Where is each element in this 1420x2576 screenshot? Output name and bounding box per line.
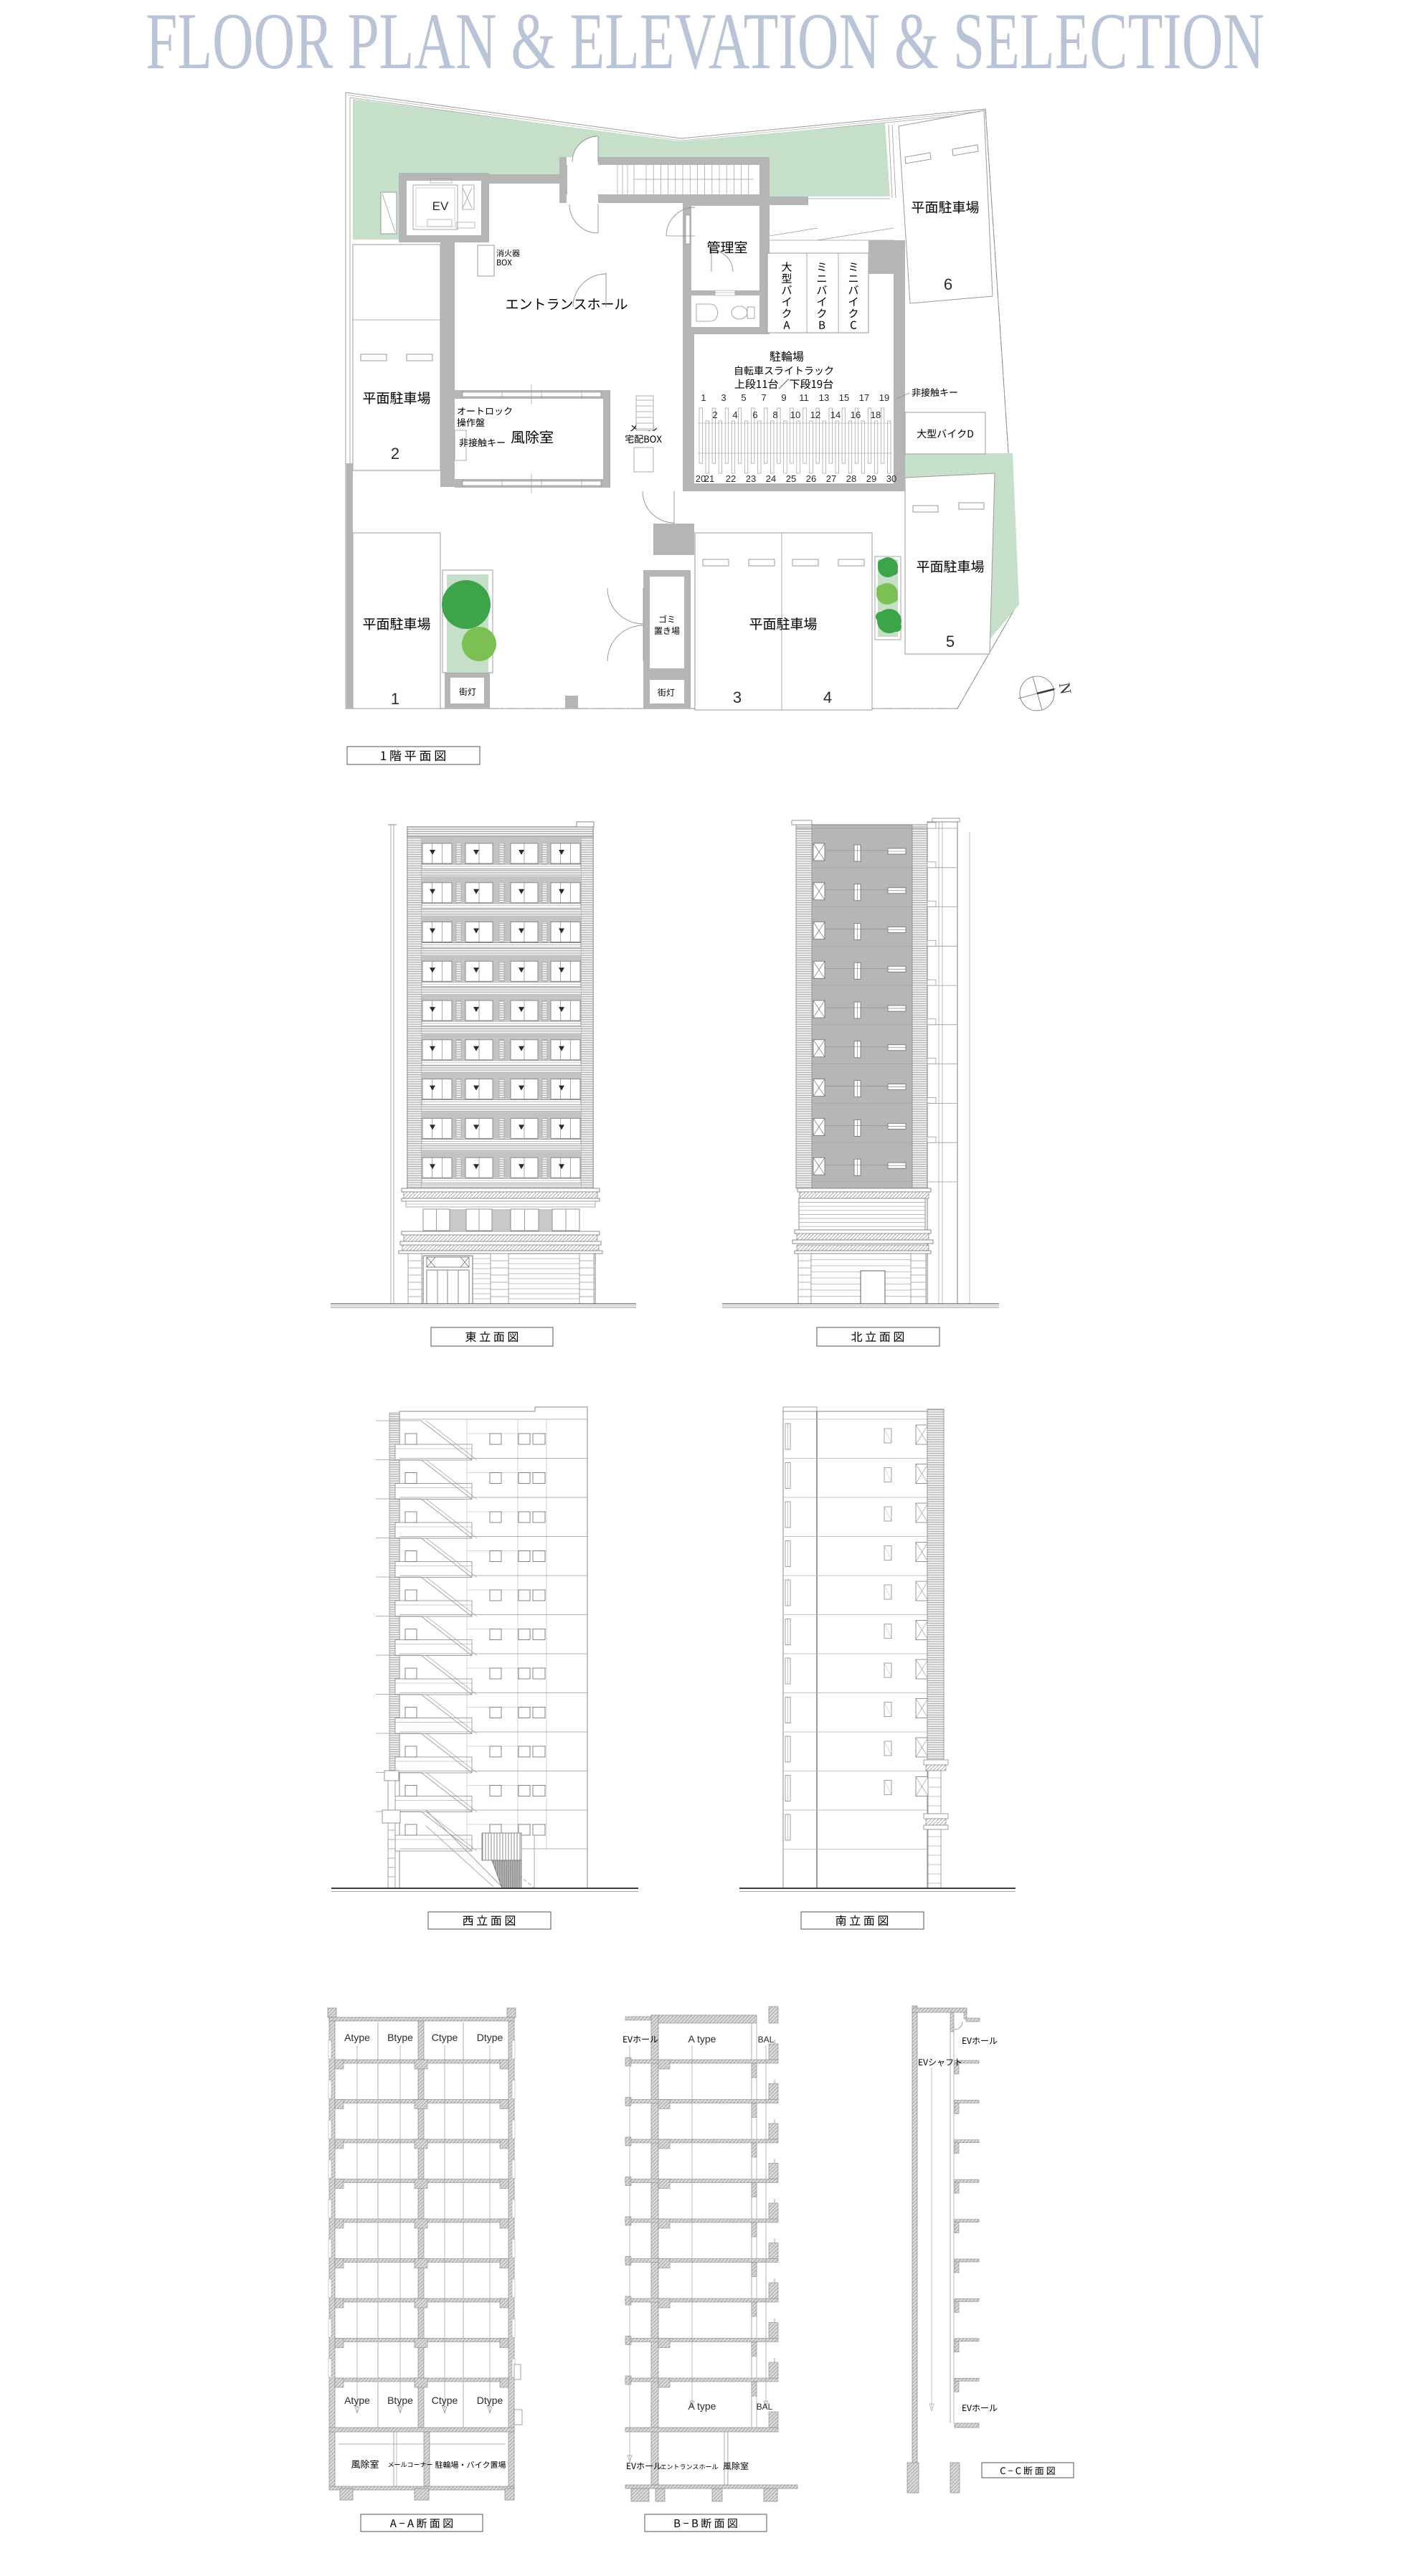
svg-text:1: 1: [391, 690, 399, 708]
svg-text:24: 24: [766, 473, 776, 484]
svg-text:Atype: Atype: [344, 2395, 370, 2406]
svg-text:19: 19: [879, 392, 889, 403]
svg-text:5: 5: [741, 392, 746, 403]
svg-text:A type: A type: [688, 2033, 716, 2045]
svg-text:2: 2: [712, 409, 717, 420]
svg-text:14: 14: [830, 409, 841, 420]
svg-text:1: 1: [701, 392, 706, 403]
svg-text:6: 6: [944, 275, 952, 293]
svg-text:7: 7: [761, 392, 766, 403]
svg-text:23: 23: [746, 473, 756, 484]
svg-text:4: 4: [732, 409, 737, 420]
svg-text:EV: EV: [432, 199, 449, 213]
svg-text:15: 15: [839, 392, 849, 403]
svg-text:28: 28: [846, 473, 856, 484]
svg-text:18: 18: [871, 409, 881, 420]
svg-text:3: 3: [733, 688, 742, 706]
svg-text:FLOOR PLAN & ELEVATION & SELEC: FLOOR PLAN & ELEVATION & SELECTION: [146, 0, 1264, 86]
svg-text:5: 5: [946, 633, 955, 650]
svg-text:16: 16: [851, 409, 861, 420]
svg-text:25: 25: [786, 473, 796, 484]
svg-text:2: 2: [391, 445, 399, 463]
svg-text:22: 22: [726, 473, 736, 484]
svg-text:3: 3: [721, 392, 726, 403]
svg-text:29: 29: [866, 473, 876, 484]
svg-text:10: 10: [790, 409, 800, 420]
svg-text:27: 27: [826, 473, 836, 484]
svg-text:8: 8: [772, 409, 777, 420]
svg-text:30: 30: [886, 473, 896, 484]
svg-text:6: 6: [752, 409, 757, 420]
svg-text:Ctype: Ctype: [432, 2032, 458, 2043]
svg-text:12: 12: [810, 409, 820, 420]
svg-text:21: 21: [704, 473, 714, 484]
svg-text:Ctype: Ctype: [432, 2395, 458, 2406]
svg-text:26: 26: [806, 473, 816, 484]
svg-text:13: 13: [819, 392, 829, 403]
svg-text:BAL: BAL: [757, 2402, 773, 2412]
svg-text:Atype: Atype: [344, 2032, 370, 2043]
svg-text:11: 11: [799, 392, 809, 403]
svg-text:Btype: Btype: [387, 2032, 413, 2043]
svg-text:Dtype: Dtype: [477, 2395, 503, 2406]
svg-text:4: 4: [823, 688, 832, 706]
svg-text:BAL: BAL: [758, 2035, 775, 2045]
svg-text:17: 17: [859, 392, 869, 403]
svg-text:9: 9: [781, 392, 786, 403]
svg-text:Btype: Btype: [387, 2395, 413, 2406]
svg-text:Dtype: Dtype: [477, 2032, 503, 2043]
svg-text:A type: A type: [688, 2400, 716, 2412]
